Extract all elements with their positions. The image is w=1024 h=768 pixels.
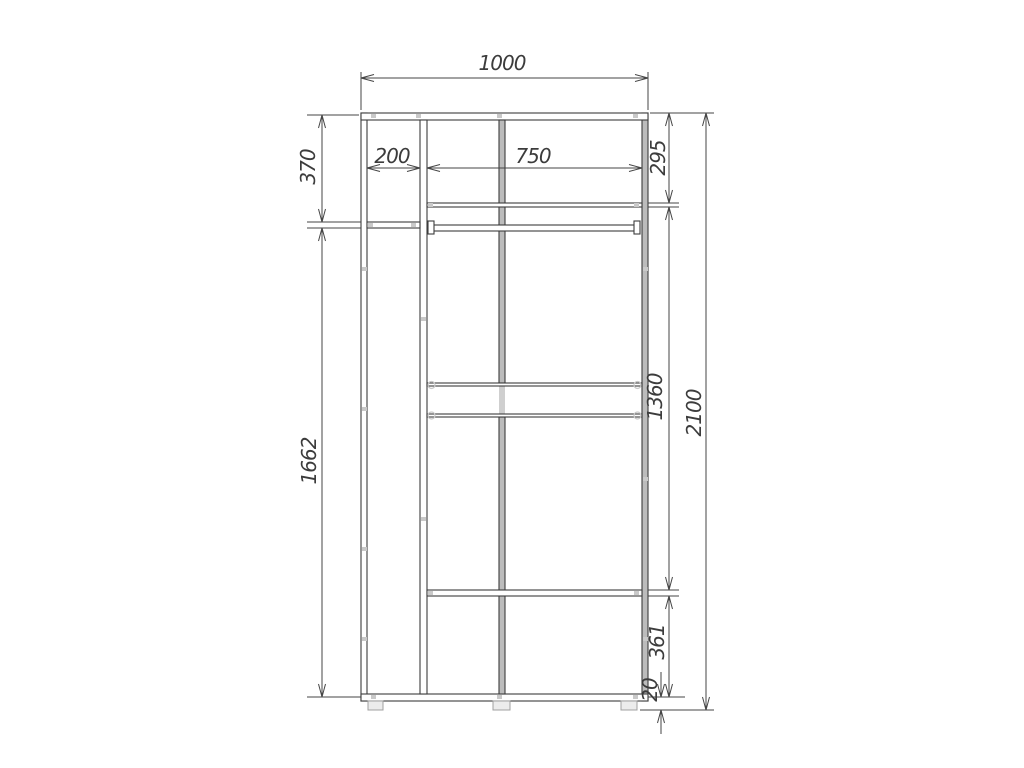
left-lower-height-label: 1662 xyxy=(299,438,319,485)
foot-middle xyxy=(493,701,510,710)
middle-band-top-edge xyxy=(427,383,642,386)
right-top-height-label: 295 xyxy=(648,140,668,175)
cabinet-structure xyxy=(361,113,648,701)
top-panel xyxy=(361,113,648,120)
right-section-width-label: 750 xyxy=(515,146,550,166)
middle-band-bottom-edge xyxy=(427,414,642,417)
right-lower-height-label: 361 xyxy=(647,624,667,659)
foot-left xyxy=(368,701,383,710)
bottom-panel xyxy=(361,694,648,701)
overall-width-label: 1000 xyxy=(479,53,526,73)
left-section-width-label: 200 xyxy=(374,146,409,166)
drawing-page: 1000 200 750 370 295 1662 1360 2100 361 … xyxy=(0,0,1024,768)
right-middle-height-label: 1360 xyxy=(645,374,665,421)
hanging-rod xyxy=(428,221,640,234)
drawing-canvas xyxy=(0,0,1024,768)
left-top-height-label: 370 xyxy=(298,149,318,184)
base-height-label: 20 xyxy=(640,678,660,701)
shelf-pin-marks xyxy=(428,382,641,420)
divider-panel-left xyxy=(420,120,427,694)
foot-right xyxy=(621,701,637,710)
lower-shelf xyxy=(427,590,642,596)
cabinet-feet xyxy=(368,701,637,710)
overall-height-label: 2100 xyxy=(684,390,704,437)
upper-shelf xyxy=(427,203,642,207)
